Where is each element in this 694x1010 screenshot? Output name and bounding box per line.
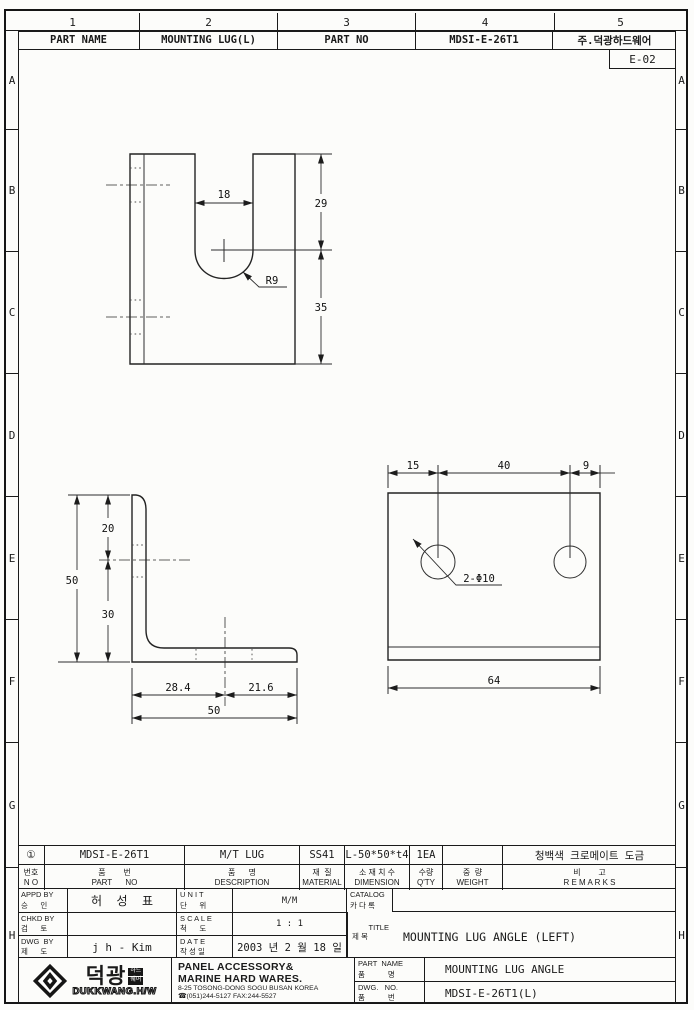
parts-table-row: ① MDSI-E-26T1 M/T LUG SS41 L-50*50*t4 1E… [18,846,676,864]
parts-header-material: 재 질MATERIAL [300,865,345,890]
parts-header-qty: 수량Q'TY [410,865,443,890]
chkd-by-label: CHKD BY검 토 [18,912,68,935]
catalog-label: CATALOG카 다 록 [347,889,393,912]
title-label: TITLE제 목 [352,914,389,950]
parts-header-remarks: 비 고R E M A R K S [503,865,676,890]
appd-by-value: 허 성 표 [68,889,177,912]
unit-label: U N I T단 위 [177,889,233,912]
company-part-name-value: MOUNTING LUG ANGLE [425,958,676,981]
appd-by-label: APPD BY승 인 [18,889,68,912]
parts-header-no: 번호N O [18,865,45,890]
part-name-label-cell: PART NAME [18,31,140,50]
zone-letter-b-right: B [676,130,687,252]
part-no-value-cell: MDSI-E-26T1 [416,31,553,50]
zone-number-3: 3 [278,13,416,31]
zone-letter-g-right: G [676,743,687,868]
engineering-drawing-sheet: 18 29 35 R9 50 [0,0,694,1010]
company-logo-badge: 하드웨어 [128,968,143,985]
parts-part-no: MDSI-E-26T1 [45,846,185,864]
company-dwg-no-value: MDSI-E-26T1(L) [425,981,676,1004]
company-address-cell: PANEL ACCESSORY& MARINE HARD WARES. 8-25… [172,958,355,1004]
company-name-cell: 주.덕광하드웨어 [553,31,676,50]
company-line4: ☎(051)244-5127 FAX:244-5527 [178,993,276,1001]
parts-description: M/T LUG [185,846,300,864]
zone-letter-d-right: D [676,374,687,497]
parts-material: SS41 [300,846,345,864]
parts-header-weight: 중 량WEIGHT [443,865,503,890]
title-value: MOUNTING LUG ANGLE (LEFT) [403,930,576,944]
zone-letter-a: A [6,31,18,130]
catalog-value [393,889,676,912]
zone-number-strip: 1 2 3 4 5 [6,13,686,31]
chkd-by-value [68,912,177,935]
company-block: 덕광 하드웨어 DUKKWANG.H/W PANEL ACCESSORY& MA… [18,957,676,1003]
drawing-title-cell: TITLE제 목 MOUNTING LUG ANGLE (LEFT) [347,912,676,958]
zone-number-4: 4 [416,13,555,31]
zone-letter-strip-right: A B C D E F G H [676,31,687,1003]
zone-letter-c-right: C [676,252,687,374]
company-logo-roman: DUKKWANG.H/W [72,987,156,997]
parts-no: ① [18,846,45,864]
zone-letter-b: B [6,130,18,252]
parts-table-header-row: 번호N O 품 번PART NO 품 명DESCRIPTION 재 질MATER… [18,864,676,889]
parts-header-dimension: 소 재 치 수DIMENSION [345,865,410,890]
zone-letter-f-right: F [676,620,687,743]
dukkwang-logo-icon [32,963,68,999]
zone-number-5: 5 [555,13,686,31]
date-value: 2003 년 2 월 18 일 [233,935,347,958]
parts-table: ① MDSI-E-26T1 M/T LUG SS41 L-50*50*t4 1E… [18,845,676,888]
zone-letter-g: G [6,743,18,868]
unit-value: M/M [233,889,347,912]
scale-label: S C A L E척 도 [177,912,233,935]
parts-header-part-no: 품 번PART NO [45,865,185,890]
company-part-name-label: PART NAME품 명 [355,958,425,981]
parts-qty: 1EA [410,846,443,864]
company-line2: MARINE HARD WARES. [178,973,302,985]
zone-letter-strip-left: A B C D E F G H [6,31,18,1003]
part-no-label-cell: PART NO [278,31,416,50]
company-logo-cell: 덕광 하드웨어 DUKKWANG.H/W [18,958,172,1004]
company-logo-korean: 덕광 [86,966,127,987]
zone-letter-a-right: A [676,31,687,130]
company-line3: 8-25 TOSONG-DONG SOGU BUSAN KOREA [178,985,318,993]
sheet-header-table: PART NAME MOUNTING LUG(L) PART NO MDSI-E… [18,31,676,50]
parts-dimension: L-50*50*t4 [345,846,410,864]
dwg-by-label: DWG BY제 도 [18,935,68,958]
approval-block: APPD BY승 인 허 성 표 U N I T단 위 M/M CATALOG카… [18,888,676,957]
zone-number-2: 2 [140,13,278,31]
date-label: D A T E작 성 일 [177,935,233,958]
scale-value: 1 : 1 [233,912,347,935]
zone-letter-h: H [6,868,18,1003]
zone-number-1: 1 [6,13,140,31]
zone-letter-f: F [6,620,18,743]
zone-letter-c: C [6,252,18,374]
zone-letter-e: E [6,497,18,620]
zone-letter-e-right: E [676,497,687,620]
part-name-value-cell: MOUNTING LUG(L) [140,31,278,50]
zone-letter-h-right: H [676,868,687,1003]
company-line1: PANEL ACCESSORY& [178,961,294,973]
parts-remarks: 청백색 크로메이트 도금 [503,846,676,864]
zone-letter-d: D [6,374,18,497]
doc-code-box: E-02 [609,50,676,69]
parts-header-description: 품 명DESCRIPTION [185,865,300,890]
parts-weight [443,846,503,864]
dwg-by-value: j h - Kim [68,935,177,958]
company-dwg-no-label: DWG. NO.품 번 [355,981,425,1004]
